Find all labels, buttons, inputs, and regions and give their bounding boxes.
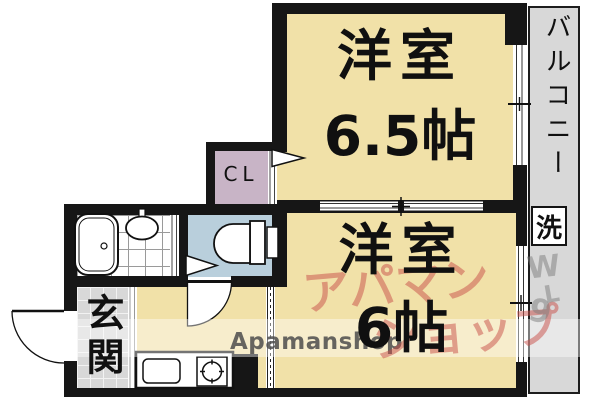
wall-left-lower-a: [64, 287, 77, 311]
wall-closet-top: [206, 142, 277, 151]
wall-left-upper: [272, 3, 287, 152]
wall-bath-left-outer: [64, 204, 77, 287]
wall-bottom: [64, 388, 527, 397]
wall-hall-top-left: [64, 276, 188, 287]
laundry-label: 洗: [536, 208, 562, 245]
wall-right-lower-b: [516, 362, 527, 397]
room2-size: 6帖: [287, 298, 516, 359]
room1-name: 洋室: [287, 26, 513, 87]
toilet-room-floor: [188, 214, 272, 277]
wall-top: [272, 3, 527, 14]
wall-kitchen-stub: [233, 354, 258, 390]
room2-name: 洋室: [287, 220, 516, 281]
closet-label: CL: [212, 162, 270, 186]
floor-plan: 洗 Apamanshop アパマン ショップ W L 9 洋室 6.5帖 洋室 …: [0, 0, 600, 400]
entrance-label: 玄関: [79, 293, 125, 389]
wall-bath-toilet-divider: [179, 214, 188, 277]
entrance-door-arc: [12, 311, 64, 363]
room1-size: 6.5帖: [287, 106, 513, 167]
wall-toilet-room2: [272, 213, 287, 287]
wall-between-rooms: [272, 200, 527, 213]
wall-right-lower-a: [516, 213, 527, 246]
balcony-label: バルコニー: [541, 13, 571, 213]
bathroom-floor: [77, 215, 179, 276]
wall-bath-toilet-top: [64, 204, 287, 215]
wall-hall-top-right: [231, 276, 273, 287]
